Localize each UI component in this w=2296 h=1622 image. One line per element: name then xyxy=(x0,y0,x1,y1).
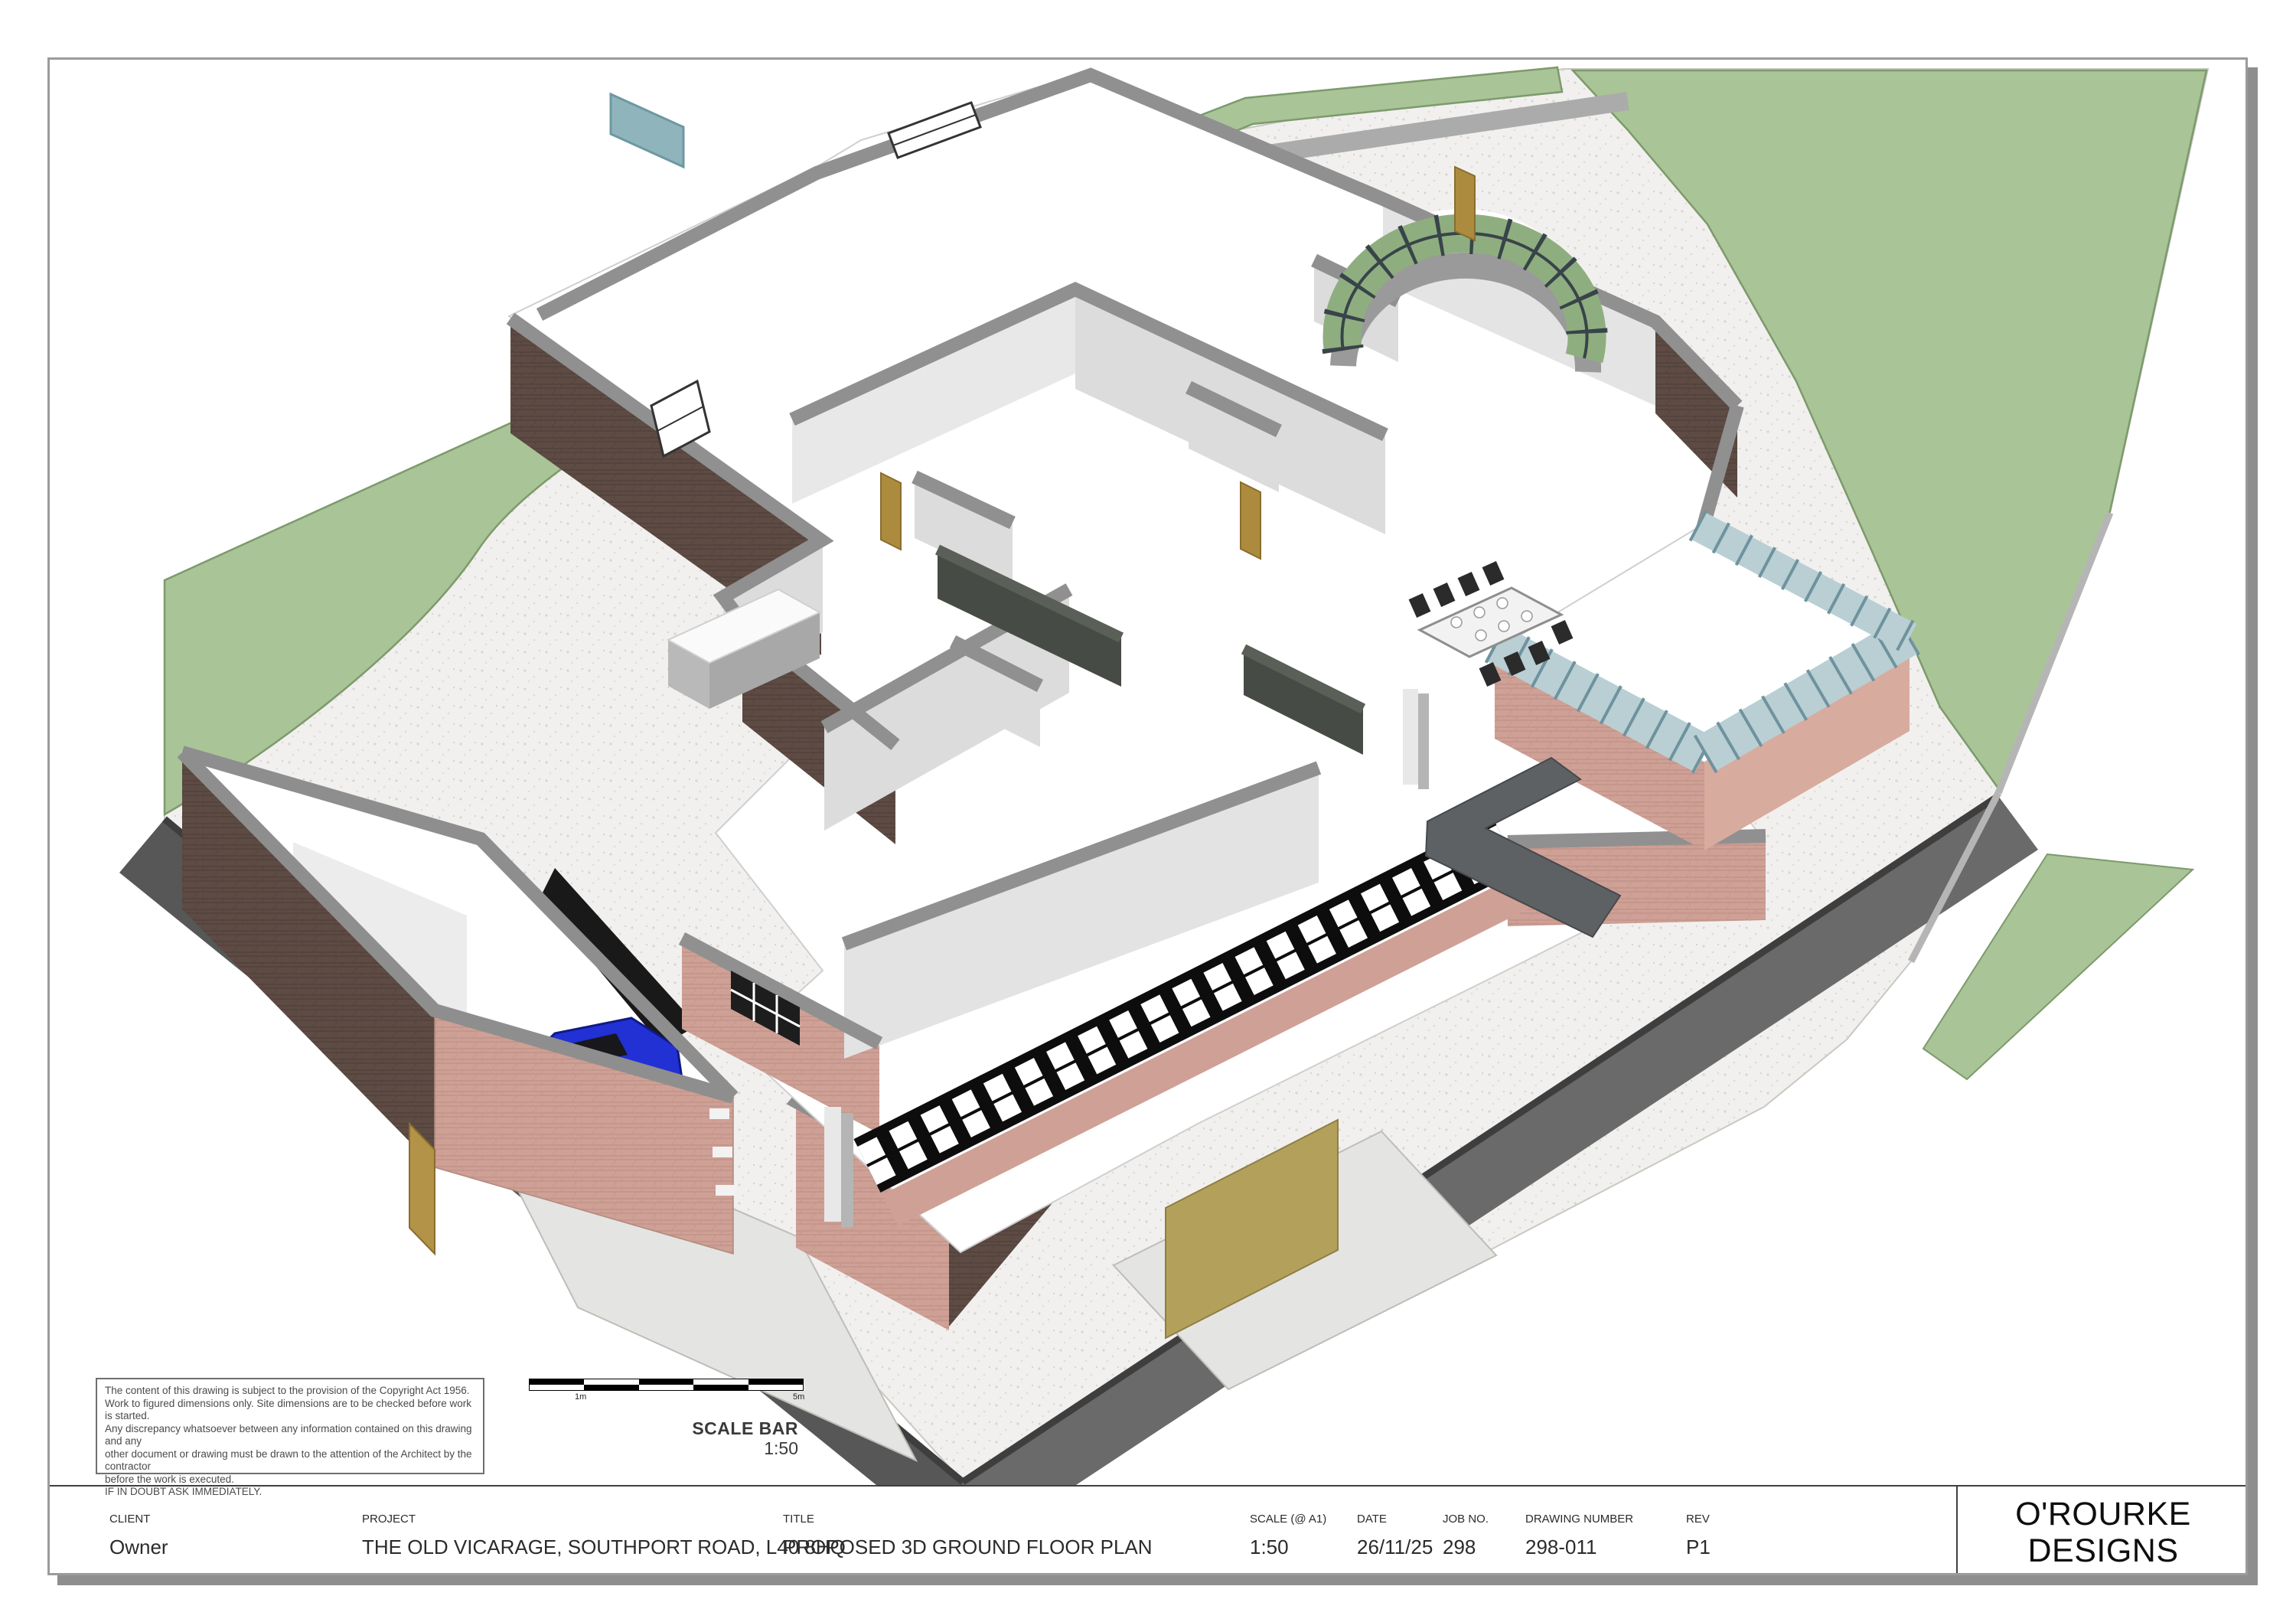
scale-bar-graphic xyxy=(529,1379,804,1391)
client-value: Owner xyxy=(109,1536,168,1559)
scale-bar-title: SCALE BAR xyxy=(585,1418,798,1439)
rooflight-panel xyxy=(611,94,683,167)
client-label: CLIENT xyxy=(109,1513,150,1526)
job-no-value: 298 xyxy=(1443,1536,1476,1559)
rev-label: REV xyxy=(1686,1513,1710,1526)
page: { "drawing_view": { "type": "3D axonomet… xyxy=(0,0,2296,1622)
date-label: DATE xyxy=(1357,1513,1387,1526)
scale-value: 1:50 xyxy=(1250,1536,1289,1559)
copyright-line: Any discrepancy whatsoever between any i… xyxy=(105,1423,475,1448)
title-value: PROPOSED 3D GROUND FLOOR PLAN xyxy=(783,1536,1153,1559)
project-value: THE OLD VICARAGE, SOUTHPORT ROAD, L40 8H… xyxy=(362,1536,846,1559)
title-label: TITLE xyxy=(783,1513,814,1526)
company-logo: O'ROURKE DESIGNS xyxy=(1958,1496,2248,1569)
rev-value: P1 xyxy=(1686,1536,1711,1559)
scale-tick-1m: 1m xyxy=(575,1392,586,1402)
title-block: CLIENT Owner PROJECT THE OLD VICARAGE, S… xyxy=(50,1485,2248,1575)
logo-line-2: DESIGNS xyxy=(1958,1532,2248,1569)
scale-label: SCALE (@ A1) xyxy=(1250,1513,1326,1526)
axonometric-plan-view xyxy=(50,60,2248,1485)
scale-tick-5m: 5m xyxy=(793,1392,804,1402)
copyright-line: other document or drawing must be drawn … xyxy=(105,1448,475,1474)
scale-bar-ratio: 1:50 xyxy=(585,1438,798,1459)
copyright-line: before the work is executed. xyxy=(105,1474,475,1487)
copyright-note: The content of this drawing is subject t… xyxy=(96,1378,484,1474)
copyright-line: Work to figured dimensions only. Site di… xyxy=(105,1398,475,1423)
copyright-line: The content of this drawing is subject t… xyxy=(105,1385,475,1398)
drawing-number-value: 298-011 xyxy=(1525,1536,1597,1559)
logo-line-1: O'ROURKE xyxy=(1958,1496,2248,1532)
drawing-sheet: The content of this drawing is subject t… xyxy=(47,57,2248,1575)
job-no-label: JOB NO. xyxy=(1443,1513,1489,1526)
date-value: 26/11/25 xyxy=(1357,1536,1433,1559)
drawing-number-label: DRAWING NUMBER xyxy=(1525,1513,1633,1526)
project-label: PROJECT xyxy=(362,1513,416,1526)
